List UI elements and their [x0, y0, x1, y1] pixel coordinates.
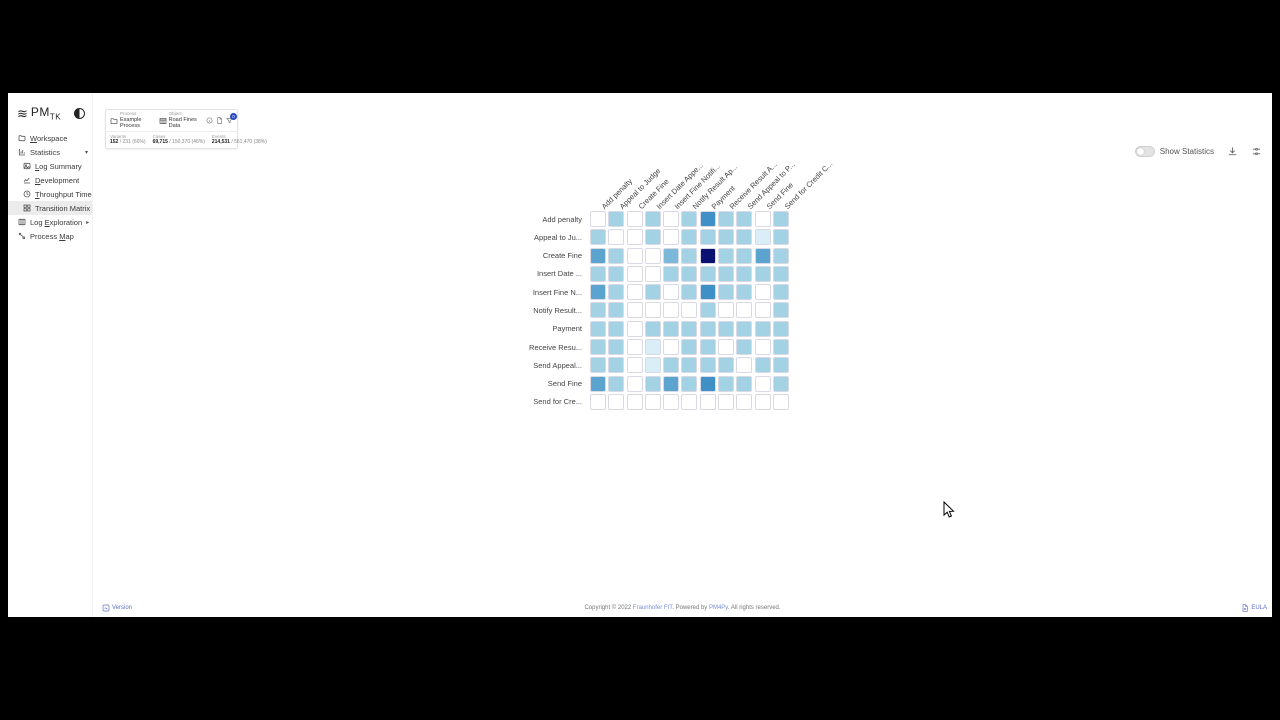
matrix-row: Receive Resu...: [505, 339, 799, 355]
matrix-cell[interactable]: [590, 284, 606, 300]
matrix-cell[interactable]: [736, 211, 752, 227]
sidebar-item-log-summary[interactable]: Log Summary: [8, 159, 92, 173]
matrix-cell[interactable]: [736, 376, 752, 392]
matrix-cell[interactable]: [627, 339, 643, 355]
matrix-cell[interactable]: [700, 284, 716, 300]
app-window: ≋ PMTK WorkspaceStatistics▾Log SummaryDe…: [8, 93, 1272, 617]
image-icon: [23, 162, 31, 170]
matrix-cell[interactable]: [718, 394, 734, 410]
matrix-cell[interactable]: [663, 266, 679, 282]
matrix-cell[interactable]: [645, 248, 661, 264]
matrix-cell[interactable]: [663, 248, 679, 264]
matrix-cell[interactable]: [627, 394, 643, 410]
row-header: Send Appeal...: [505, 361, 590, 370]
matrix-cell[interactable]: [681, 211, 697, 227]
sidebar-nav: WorkspaceStatistics▾Log SummaryDevelopme…: [8, 131, 92, 243]
matrix-cell[interactable]: [718, 211, 734, 227]
matrix-cell[interactable]: [590, 357, 606, 373]
route-icon: [18, 232, 26, 240]
matrix-cell[interactable]: [645, 339, 661, 355]
table-icon: [159, 117, 167, 125]
matrix-row: Insert Fine N...: [505, 284, 799, 300]
matrix-cell[interactable]: [718, 266, 734, 282]
matrix-row: Insert Date ...: [505, 266, 799, 282]
matrix-cell[interactable]: [590, 211, 606, 227]
matrix-cell[interactable]: [773, 376, 789, 392]
column-header: Payment: [708, 163, 726, 211]
caret-down-icon: ▾: [85, 149, 88, 156]
column-header: Send Appeal to P...: [744, 163, 762, 211]
matrix-cell[interactable]: [700, 376, 716, 392]
matrix-cell[interactable]: [608, 211, 624, 227]
matrix-row: Appeal to Ju...: [505, 229, 799, 245]
matrix-cell[interactable]: [755, 229, 771, 245]
matrix-row: Send Appeal...: [505, 357, 799, 373]
matrix-cell[interactable]: [608, 229, 624, 245]
sidebar-item-label: Log Summary: [35, 162, 82, 171]
matrix-cell[interactable]: [755, 394, 771, 410]
show-statistics-toggle[interactable]: Show Statistics: [1135, 146, 1214, 157]
matrix-cell[interactable]: [590, 376, 606, 392]
matrix-cell[interactable]: [736, 248, 752, 264]
column-header: Send for Credit C...: [781, 163, 799, 211]
matrix-cell[interactable]: [681, 357, 697, 373]
matrix-cell[interactable]: [736, 229, 752, 245]
matrix-cell[interactable]: [773, 302, 789, 318]
clock-icon: [23, 190, 31, 198]
matrix-cell[interactable]: [590, 339, 606, 355]
matrix-cell[interactable]: [645, 211, 661, 227]
matrix-cell[interactable]: [700, 248, 716, 264]
column-header: Create Fine: [635, 163, 653, 211]
matrix-cell[interactable]: [608, 357, 624, 373]
pmtk-logo-icon: ≋: [17, 107, 28, 120]
matrix-cell[interactable]: [718, 248, 734, 264]
filter-icon[interactable]: 0: [226, 117, 233, 124]
matrix-cell[interactable]: [773, 266, 789, 282]
matrix-cell[interactable]: [645, 284, 661, 300]
matrix-cell[interactable]: [663, 284, 679, 300]
sidebar-item-label: Transition Matrix: [35, 204, 90, 213]
sidebar-item-label: Throughput Time: [35, 190, 92, 199]
sidebar-item-log-exploration[interactable]: Log Exploration▸: [8, 215, 92, 229]
matrix-row: Payment: [505, 321, 799, 337]
matrix-cell[interactable]: [590, 266, 606, 282]
object-entity[interactable]: ObjectRoad Fines Data: [159, 112, 203, 129]
matrix-cell[interactable]: [736, 394, 752, 410]
matrix-cell[interactable]: [627, 321, 643, 337]
download-icon[interactable]: [1227, 146, 1238, 157]
matrix-cell[interactable]: [627, 284, 643, 300]
matrix-cell[interactable]: [663, 357, 679, 373]
matrix-cell[interactable]: [700, 357, 716, 373]
folder-icon: [110, 117, 118, 125]
matrix-cell[interactable]: [700, 302, 716, 318]
folder-icon: [18, 134, 26, 142]
matrix-cell[interactable]: [663, 394, 679, 410]
process-name: Example Process: [120, 117, 156, 129]
log-stats: Variants152 / 231 (66%)Cases69,715 / 150…: [106, 132, 237, 148]
matrix-cell[interactable]: [627, 211, 643, 227]
sidebar-item-transition-matrix[interactable]: Transition Matrix: [8, 201, 92, 215]
column-header: Insert Fine Notifi...: [671, 163, 689, 211]
fraunhofer-link[interactable]: Fraunhofer FIT: [633, 605, 672, 611]
matrix-column-headers: Add penaltyAppeal to JudgeCreate FineIns…: [505, 163, 799, 211]
matrix-controls: Show Statistics: [1135, 146, 1262, 157]
column-header: Appeal to Judge: [616, 163, 634, 211]
matrix-cell[interactable]: [718, 321, 734, 337]
matrix-cell[interactable]: [681, 339, 697, 355]
matrix-cell[interactable]: [590, 394, 606, 410]
matrix-cell[interactable]: [773, 394, 789, 410]
matrix-cell[interactable]: [700, 339, 716, 355]
row-header: Receive Resu...: [505, 343, 590, 352]
column-header: Insert Date Appe...: [653, 163, 671, 211]
sidebar-item-label: Process Map: [30, 232, 74, 241]
matrix-row: Send Fine: [505, 376, 799, 392]
pm4py-link[interactable]: PM4Py: [709, 605, 728, 611]
matrix-cell[interactable]: [681, 394, 697, 410]
column-header: Send Fine: [763, 163, 781, 211]
matrix-cell[interactable]: [627, 302, 643, 318]
transition-matrix-heatmap: Add penaltyAppeal to JudgeCreate FineIns…: [505, 163, 799, 412]
matrix-cell[interactable]: [718, 339, 734, 355]
sidebar-item-label: Development: [35, 176, 79, 185]
matrix-cell[interactable]: [645, 357, 661, 373]
line-chart-icon: [23, 176, 31, 184]
matrix-cell[interactable]: [681, 302, 697, 318]
matrix-cell[interactable]: [608, 376, 624, 392]
matrix-cell[interactable]: [718, 229, 734, 245]
matrix-cell[interactable]: [663, 229, 679, 245]
matrix-cell[interactable]: [663, 302, 679, 318]
matrix-cell[interactable]: [700, 394, 716, 410]
matrix-cell[interactable]: [608, 302, 624, 318]
row-header: Insert Date ...: [505, 269, 590, 278]
sidebar-item-development[interactable]: Development: [8, 173, 92, 187]
row-header: Insert Fine N...: [505, 288, 590, 297]
sidebar-item-process-map[interactable]: Process Map: [8, 229, 92, 243]
column-header: Notify Result Ap...: [689, 163, 707, 211]
row-header: Appeal to Ju...: [505, 233, 590, 242]
filter-count-badge: 0: [230, 113, 237, 120]
matrix-cell[interactable]: [663, 321, 679, 337]
bar-chart-icon: [18, 148, 26, 156]
brand-name: PMTK: [31, 105, 61, 121]
sidebar: ≋ PMTK WorkspaceStatistics▾Log SummaryDe…: [8, 93, 93, 617]
matrix-cell[interactable]: [736, 339, 752, 355]
version-icon: [102, 604, 110, 612]
matrix-cell[interactable]: [718, 357, 734, 373]
row-header: Add penalty: [505, 215, 590, 224]
grid-icon: [23, 204, 31, 212]
stat-variants: Variants152 / 231 (66%): [110, 134, 146, 145]
matrix-cell[interactable]: [773, 211, 789, 227]
version-link[interactable]: Version: [102, 604, 132, 612]
matrix-row: Notify Result...: [505, 302, 799, 318]
matrix-cell[interactable]: [608, 394, 624, 410]
matrix-cell[interactable]: [645, 266, 661, 282]
matrix-cell[interactable]: [645, 376, 661, 392]
matrix-cell[interactable]: [736, 266, 752, 282]
matrix-cell[interactable]: [608, 321, 624, 337]
column-header: Add penalty: [598, 163, 616, 211]
show-statistics-label: Show Statistics: [1160, 147, 1214, 156]
matrix-cell[interactable]: [681, 284, 697, 300]
matrix-cell[interactable]: [627, 248, 643, 264]
matrix-cell[interactable]: [773, 339, 789, 355]
columns-icon: [18, 218, 26, 226]
toggle-track[interactable]: [1135, 146, 1155, 157]
log-info-card: ProcessExample Process ObjectRoad Fines …: [105, 109, 238, 149]
sidebar-item-workspace[interactable]: Workspace: [8, 131, 92, 145]
matrix-cell[interactable]: [700, 321, 716, 337]
matrix-cell[interactable]: [773, 248, 789, 264]
matrix-cell[interactable]: [681, 229, 697, 245]
row-header: Create Fine: [505, 251, 590, 260]
matrix-cell[interactable]: [718, 302, 734, 318]
document-icon: [1241, 604, 1249, 612]
matrix-cell[interactable]: [755, 339, 771, 355]
sidebar-item-throughput-time[interactable]: Throughput Time: [8, 187, 92, 201]
matrix-cell[interactable]: [590, 321, 606, 337]
settings-sliders-icon[interactable]: [1251, 146, 1262, 157]
row-header: Notify Result...: [505, 306, 590, 315]
object-name: Road Fines Data: [169, 117, 203, 129]
matrix-cell[interactable]: [773, 321, 789, 337]
matrix-cell[interactable]: [755, 321, 771, 337]
matrix-cell[interactable]: [700, 211, 716, 227]
matrix-cell[interactable]: [590, 229, 606, 245]
matrix-cell[interactable]: [773, 284, 789, 300]
matrix-cell[interactable]: [608, 284, 624, 300]
matrix-cell[interactable]: [608, 266, 624, 282]
main-area: ProcessExample Process ObjectRoad Fines …: [93, 93, 1272, 617]
logo: ≋ PMTK: [8, 105, 92, 131]
matrix-cell[interactable]: [755, 266, 771, 282]
matrix-cell[interactable]: [755, 302, 771, 318]
matrix-cell[interactable]: [700, 266, 716, 282]
stat-events: Events214,531 / 561,470 (38%): [212, 134, 267, 145]
matrix-cell[interactable]: [590, 248, 606, 264]
matrix-cell[interactable]: [718, 284, 734, 300]
matrix-cell[interactable]: [663, 376, 679, 392]
matrix-cell[interactable]: [645, 394, 661, 410]
process-entity[interactable]: ProcessExample Process: [110, 112, 156, 129]
matrix-cell[interactable]: [718, 376, 734, 392]
matrix-cell[interactable]: [755, 284, 771, 300]
matrix-cell[interactable]: [681, 321, 697, 337]
matrix-cell[interactable]: [736, 357, 752, 373]
row-header: Payment: [505, 324, 590, 333]
row-header: Send Fine: [505, 379, 590, 388]
matrix-cell[interactable]: [608, 339, 624, 355]
matrix-cell[interactable]: [645, 229, 661, 245]
sidebar-item-label: Log Exploration: [30, 218, 82, 227]
stat-cases: Cases69,715 / 150,370 (46%): [153, 134, 205, 145]
matrix-cell[interactable]: [681, 266, 697, 282]
matrix-row: Add penalty: [505, 211, 799, 227]
matrix-cell[interactable]: [663, 211, 679, 227]
matrix-cell[interactable]: [627, 357, 643, 373]
matrix-cell[interactable]: [755, 376, 771, 392]
matrix-cell[interactable]: [755, 357, 771, 373]
caret-right-icon: ▸: [86, 219, 89, 226]
matrix-cell[interactable]: [681, 376, 697, 392]
matrix-cell[interactable]: [627, 229, 643, 245]
matrix-cell[interactable]: [736, 284, 752, 300]
row-header: Send for Cre...: [505, 397, 590, 406]
toggle-knob: [1137, 148, 1144, 155]
matrix-cell[interactable]: [645, 302, 661, 318]
matrix-cell[interactable]: [627, 376, 643, 392]
matrix-cell[interactable]: [590, 302, 606, 318]
column-header: Receive Result A...: [726, 163, 744, 211]
matrix-cell[interactable]: [736, 302, 752, 318]
matrix-row: Send for Cre...: [505, 394, 799, 410]
matrix-cell[interactable]: [773, 357, 789, 373]
sidebar-item-label: Workspace: [30, 134, 67, 143]
sidebar-item-label: Statistics: [30, 148, 60, 157]
matrix-cell[interactable]: [755, 211, 771, 227]
matrix-cell[interactable]: [681, 248, 697, 264]
matrix-cell[interactable]: [736, 321, 752, 337]
theme-toggle-icon[interactable]: [74, 108, 85, 119]
matrix-cell[interactable]: [773, 229, 789, 245]
matrix-cell[interactable]: [663, 339, 679, 355]
info-icon[interactable]: [206, 117, 213, 124]
matrix-row: Create Fine: [505, 248, 799, 264]
matrix-cell[interactable]: [700, 229, 716, 245]
matrix-cell[interactable]: [608, 248, 624, 264]
eula-link[interactable]: EULA: [1241, 604, 1267, 612]
matrix-cell[interactable]: [645, 321, 661, 337]
matrix-cell[interactable]: [755, 248, 771, 264]
copyright: Copyright © 2022 Fraunhofer FIT. Powered…: [93, 605, 1272, 611]
sidebar-item-statistics[interactable]: Statistics▾: [8, 145, 92, 159]
matrix-cell[interactable]: [627, 266, 643, 282]
file-icon[interactable]: [216, 117, 223, 124]
